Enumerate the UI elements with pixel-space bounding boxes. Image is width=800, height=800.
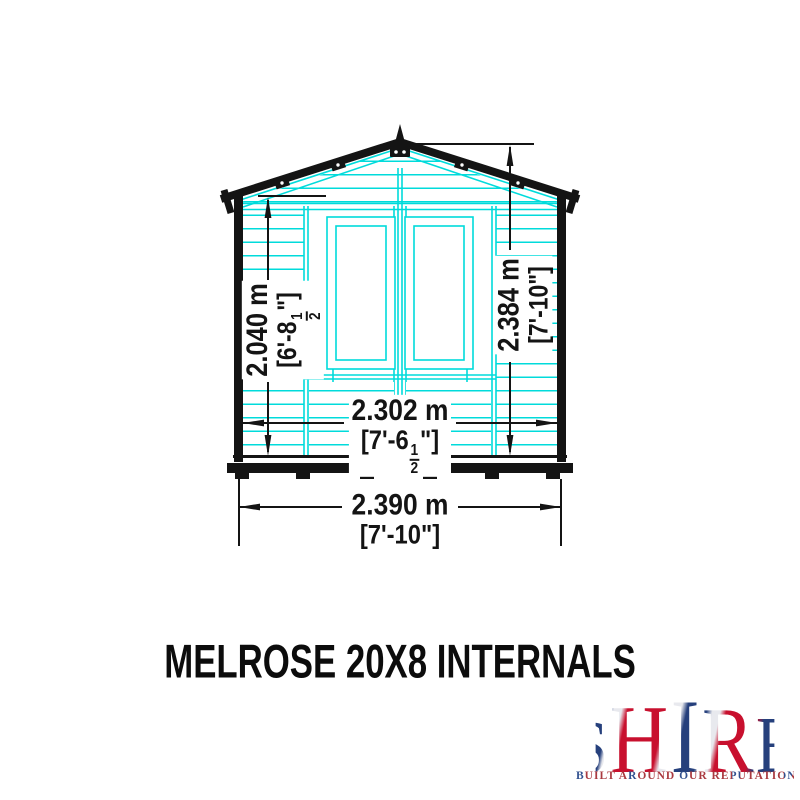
- base-foot: [235, 473, 249, 479]
- dim-imperial: [7'-10"]: [525, 258, 553, 352]
- dim-imperial: [6'-812"]: [273, 283, 324, 377]
- dim-label-width-outer: 2.390 m [7'-10"]: [349, 489, 451, 548]
- dim-metric: 2.302 m: [352, 395, 449, 426]
- fraction: 12: [289, 312, 324, 321]
- base-foot: [546, 473, 560, 479]
- shire-logo: S H I R E BUILT AROUND OUR REPUTATION: [576, 684, 794, 784]
- fraction: 12: [410, 442, 419, 477]
- shire-logo-word: S H I R E: [596, 684, 775, 772]
- right-window-glass: [414, 226, 464, 360]
- dim-label-height-left: 2.040 m [6'-812"]: [242, 281, 324, 380]
- base-foot: [296, 473, 310, 479]
- dim-metric: 2.390 m: [352, 489, 449, 520]
- base-foot: [485, 473, 499, 479]
- melrose-internals-page: 2.040 m [6'-812"] 2.384 m [7'-10"] 2.302…: [0, 0, 800, 800]
- right-wall: [557, 196, 566, 462]
- page-title: MELROSE 20X8 INTERNALS: [164, 634, 636, 689]
- dim-label-height-right: 2.384 m [7'-10"]: [493, 256, 552, 355]
- dim-metric: 2.384 m: [493, 258, 524, 352]
- dim-label-width-inner: 2.302 m [7'-612"]: [349, 395, 451, 477]
- left-window-glass: [336, 226, 386, 360]
- dim-metric: 2.040 m: [242, 283, 273, 377]
- shire-logo-tagline: BUILT AROUND OUR REPUTATION: [576, 770, 794, 782]
- dim-imperial: [7'-612"]: [352, 426, 449, 477]
- dim-imperial: [7'-10"]: [352, 521, 449, 549]
